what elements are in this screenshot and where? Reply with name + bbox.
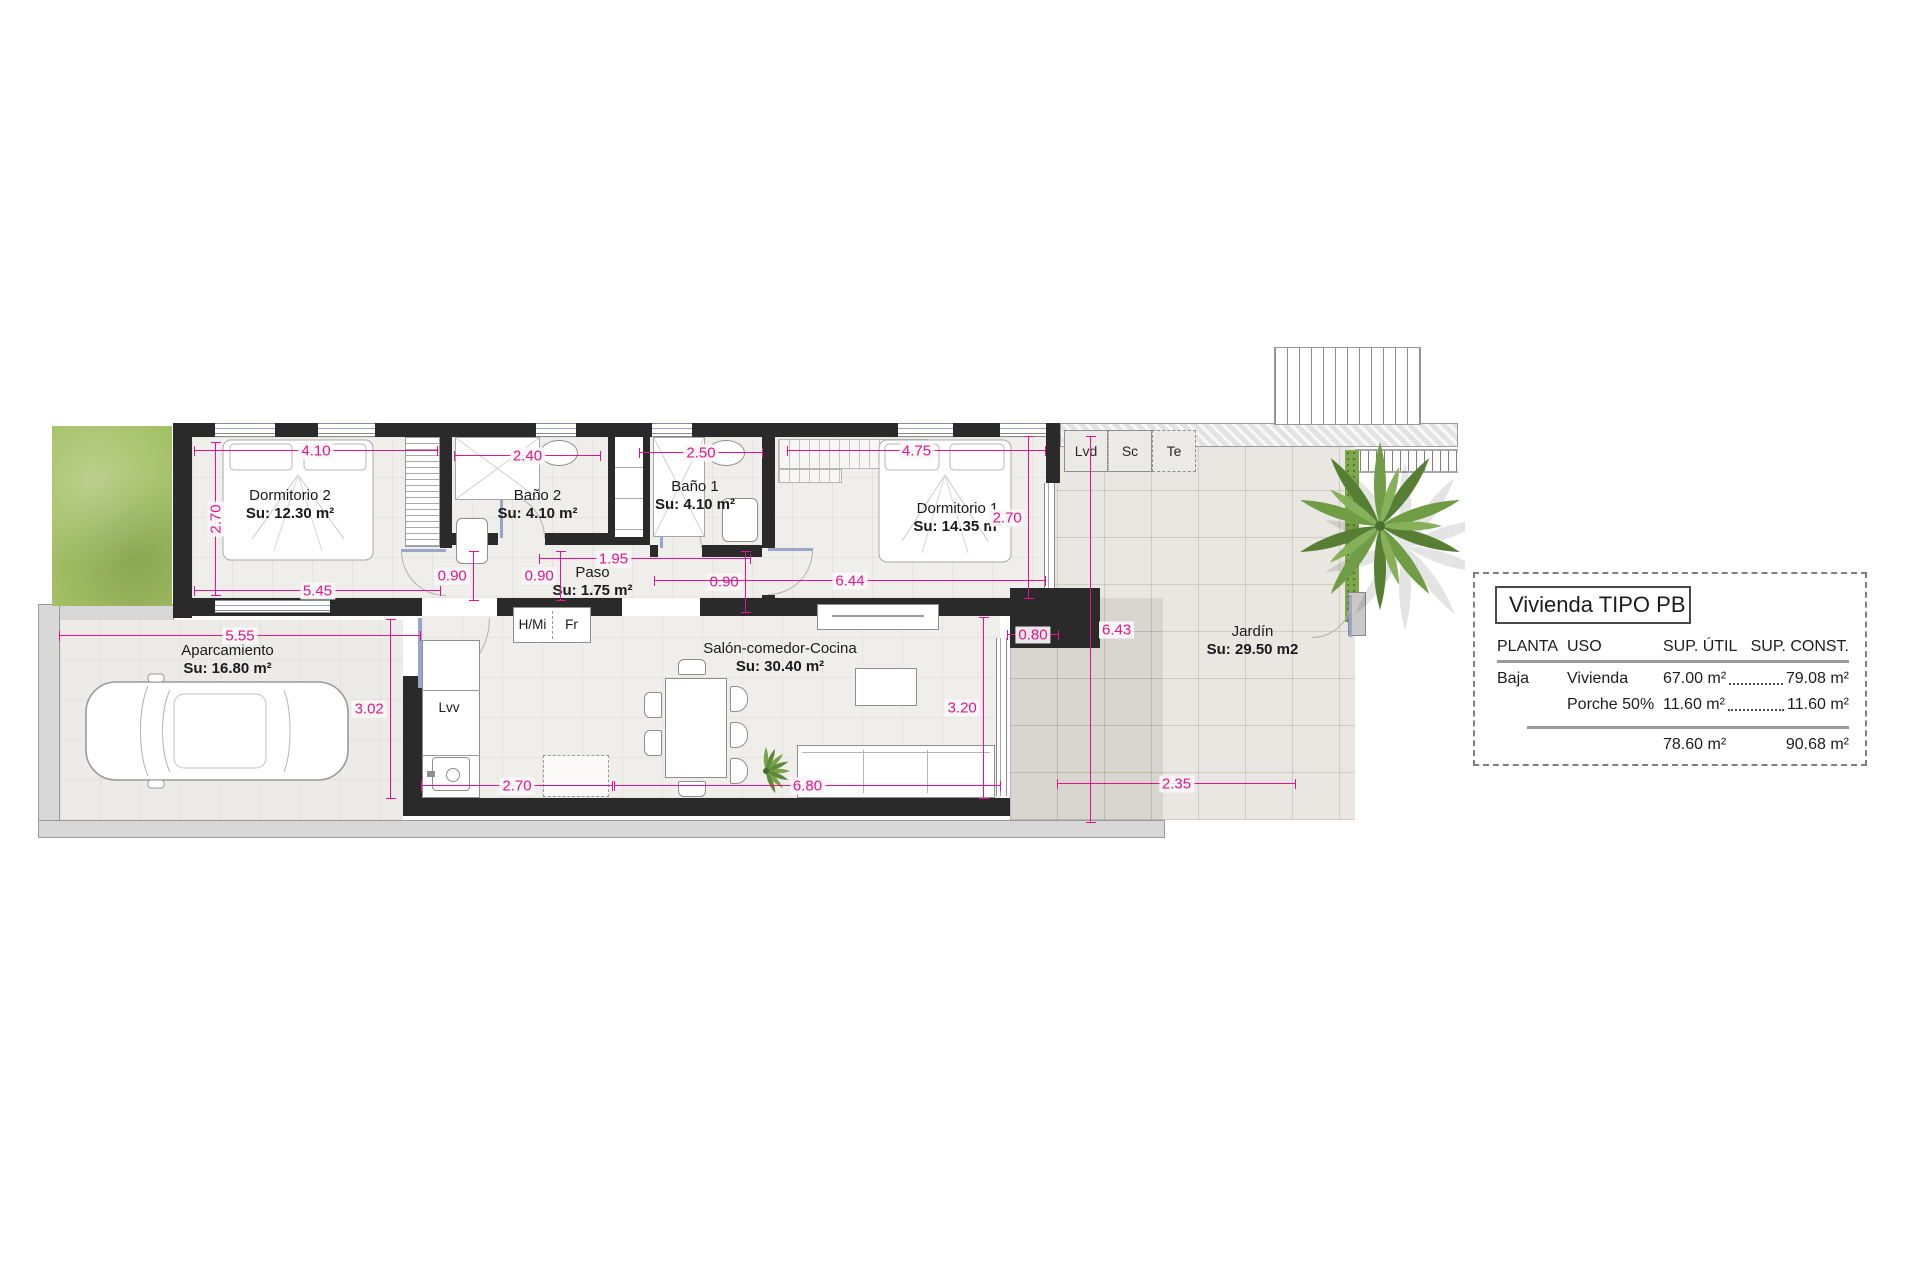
room-name: Salón-comedor-Cocina — [690, 640, 870, 658]
col-util-label: SUP. ÚTIL — [1663, 638, 1737, 656]
room-area: Su: 4.10 m² — [630, 496, 760, 514]
room-area: Su: 12.30 m² — [215, 505, 365, 523]
wardrobe-dorm2 — [405, 437, 440, 547]
legend-header-row: PLANTA USO SUP. ÚTILSUP. CONST. — [1497, 638, 1849, 656]
sidewalk-bottom — [38, 820, 1165, 838]
wall-east-top — [1046, 423, 1060, 483]
room-label-jardin: Jardín Su: 29.50 m2 — [1195, 623, 1310, 659]
chair — [678, 781, 706, 797]
dimension-carport-height: 3.02 — [390, 620, 391, 798]
dimension-salon-top: 6.44 — [655, 580, 1045, 581]
window-bano1 — [652, 423, 692, 437]
dimension-dorm1-height: 2.70 — [1028, 437, 1029, 598]
wall-kitchen-west — [403, 676, 422, 816]
col-const-label: SUP. CONST. — [1751, 638, 1849, 656]
palm-tree-icon — [1295, 438, 1465, 628]
cell-util: 11.60 m² — [1663, 696, 1725, 714]
legend-title: Vivienda TIPO PB — [1509, 592, 1686, 618]
dining-table — [665, 678, 727, 778]
dotted-leader — [1728, 709, 1784, 711]
toilet-icon-bano2 — [456, 518, 488, 564]
wall-bano1-south-a — [650, 545, 658, 557]
dimension-bano2-width: 2.40 — [455, 455, 600, 456]
window-dorm2-south — [215, 600, 330, 613]
room-area: Su: 16.80 m² — [150, 660, 305, 678]
storage-label-lvd: Lvd — [1075, 443, 1098, 459]
wall-south — [403, 798, 1010, 816]
dimension-dorm1-width: 4.75 — [788, 450, 1045, 451]
total-util: 78.60 m² — [1663, 736, 1726, 754]
dimension-dorm2-height: 2.70 — [215, 443, 216, 595]
storage-cell-sc: Sc — [1108, 430, 1152, 472]
room-name: Aparcamiento — [150, 642, 305, 660]
cell-const: 11.60 m² — [1787, 696, 1849, 714]
plant-icon — [740, 745, 792, 797]
window-dorm1-a — [898, 423, 953, 437]
counter-line — [422, 690, 480, 691]
room-label-bano2: Baño 2 Su: 4.10 m² — [470, 487, 605, 523]
sofa-cushion-line — [927, 750, 928, 793]
room-name: Jardín — [1195, 623, 1310, 641]
legend-row: Porche 50% 11.60 m²11.60 m² — [1497, 696, 1849, 714]
cell-const: 79.08 m² — [1786, 670, 1849, 688]
stairs-hatch — [1274, 347, 1421, 425]
sofa — [797, 745, 995, 798]
dimension-bano1-width: 2.50 — [640, 452, 762, 453]
window-dorm2-a — [215, 423, 275, 437]
room-area: Su: 4.10 m² — [470, 505, 605, 523]
col-planta: PLANTA — [1497, 638, 1567, 656]
dimension-dorm2-width: 4.10 — [195, 450, 437, 451]
wall-dorm2-east — [440, 423, 452, 548]
total-const: 90.68 m² — [1786, 736, 1849, 754]
dimension-porch-width: 2.35 — [1058, 783, 1295, 784]
appliance-label-fr: Fr — [552, 617, 591, 633]
closet-dorm1-step — [778, 469, 842, 483]
chair — [644, 692, 662, 718]
grass-patch — [52, 426, 172, 606]
window-dorm2-b — [318, 423, 375, 437]
room-area: Su: 29.50 m2 — [1195, 641, 1310, 659]
room-label-bano1: Baño 1 Su: 4.10 m² — [630, 478, 760, 514]
legend-row: Baja Vivienda 67.00 m²79.08 m² — [1497, 670, 1849, 688]
dimension-jardin-height: 6.43 — [1090, 437, 1091, 822]
car-icon — [78, 668, 362, 794]
chair — [644, 730, 662, 756]
appliance-label-lvv: Lvv — [424, 700, 474, 716]
tv-icon — [832, 615, 924, 617]
window-bano2 — [536, 423, 576, 437]
tv-unit — [817, 604, 939, 630]
sink-icon-bano2 — [540, 440, 578, 466]
cell-values: 67.00 m²79.08 m² — [1663, 670, 1849, 688]
window-dorm1-east — [1044, 483, 1055, 588]
counter-line — [422, 755, 480, 756]
legend-box: Vivienda TIPO PB PLANTA USO SUP. ÚTILSUP… — [1473, 572, 1867, 766]
sofa-back-line — [802, 752, 990, 753]
cell-uso: Vivienda — [1567, 670, 1663, 688]
dotted-leader — [1729, 683, 1783, 685]
sliding-door-salon — [996, 638, 1007, 796]
storage-label-te: Te — [1167, 443, 1182, 459]
storage-label-sc: Sc — [1122, 443, 1138, 459]
appliance-label-hmi: H/Mi — [513, 617, 552, 633]
room-label-salon: Salón-comedor-Cocina Su: 30.40 m² — [690, 640, 870, 676]
room-area: Su: 30.40 m² — [690, 658, 870, 676]
wall-bano2-south-b — [545, 533, 608, 545]
dimension-dorm2-bottom: 5.45 — [195, 590, 440, 591]
col-uso: USO — [1567, 638, 1663, 656]
dimension-nook: 0.90 — [745, 552, 746, 612]
sofa-cushion-line — [863, 750, 864, 793]
dimension-salon-bottom: 6.80 — [615, 785, 1000, 786]
legend-total-row: 78.60 m²90.68 m² — [1497, 736, 1849, 754]
cell-totals: 78.60 m²90.68 m² — [1663, 736, 1849, 754]
sink-drain-icon — [446, 768, 460, 782]
cell-values: 11.60 m²11.60 m² — [1663, 696, 1849, 714]
faucet-icon — [427, 771, 435, 777]
cell-uso: Porche 50% — [1567, 696, 1663, 714]
wall-dorm1-west-b — [762, 595, 775, 616]
dimension-paso-width: 1.95 — [540, 558, 750, 559]
cell-util: 67.00 m² — [1663, 670, 1726, 688]
cell-planta: Baja — [1497, 670, 1567, 688]
dimension-carport-width: 5.55 — [60, 635, 420, 636]
dimension-porch-jog: 0.80 — [1008, 634, 1058, 635]
room-label-dormitorio2: Dormitorio 2 Su: 12.30 m² — [215, 487, 365, 523]
window-dorm1-b — [1000, 423, 1046, 437]
legend-rule-top — [1497, 660, 1849, 663]
room-name: Baño 2 — [470, 487, 605, 505]
kitchen-island-outline — [543, 755, 609, 797]
sidewalk-left — [38, 604, 60, 838]
wall-west — [173, 423, 192, 618]
dimension-paso-a: 0.90 — [473, 552, 474, 600]
room-label-aparcamiento: Aparcamiento Su: 16.80 m² — [150, 642, 305, 678]
legend-title-box: Vivienda TIPO PB — [1495, 586, 1691, 624]
room-name: Dormitorio 2 — [215, 487, 365, 505]
dimension-kitchen-width: 2.70 — [422, 785, 612, 786]
floor-plan-canvas: H/Mi Fr Lvv — [0, 0, 1920, 1280]
dimension-paso-b: 0.90 — [560, 552, 561, 600]
wall-bano1-south-b — [702, 545, 762, 557]
wall-dorm1-west-a — [762, 423, 775, 548]
storage-cell-te: Te — [1152, 430, 1196, 472]
col-util: SUP. ÚTILSUP. CONST. — [1663, 638, 1849, 656]
dimension-salon-height: 3.20 — [983, 618, 984, 798]
room-name: Baño 1 — [630, 478, 760, 496]
legend-rule-total — [1527, 726, 1849, 729]
